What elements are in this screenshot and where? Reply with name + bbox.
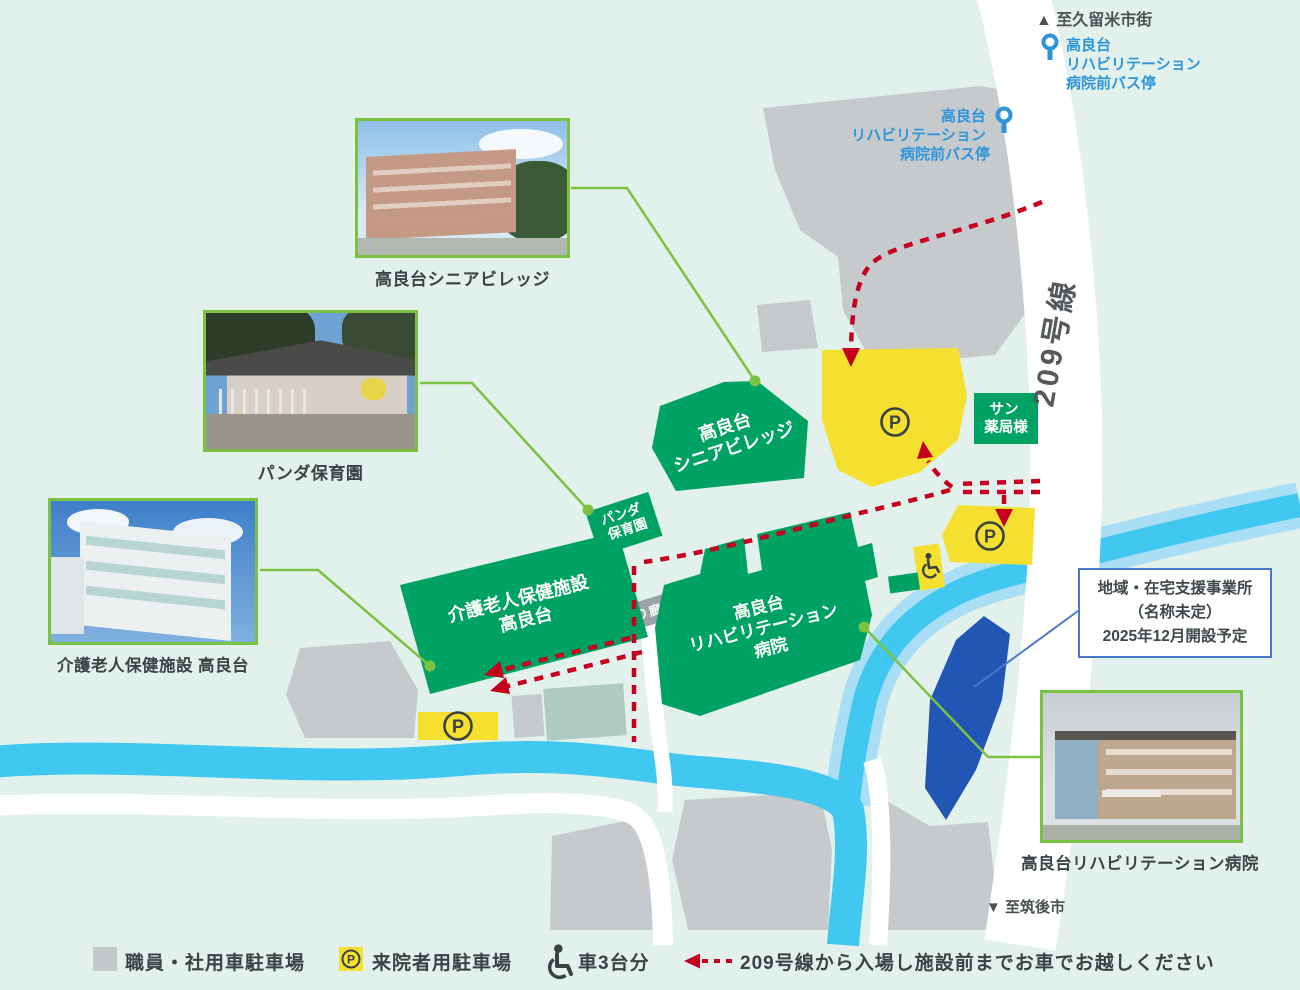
arrowhead-kaigo-2 [490, 677, 510, 694]
legend-wheelchair-label: 車3台分 [578, 948, 650, 975]
svg-text:P: P [452, 717, 464, 737]
callout-dot [859, 622, 870, 633]
photo-roofline [1055, 731, 1236, 740]
photo-caption: パンダ保育園 [203, 459, 418, 484]
photo-rehab-hospital [1040, 690, 1243, 843]
planned-site-info-box: 地域・在宅支援事業所 （名称未定） 2025年12月開設予定 [1078, 568, 1272, 658]
photo-canopy [1102, 790, 1161, 797]
photo-kaigo-rojin [48, 498, 258, 645]
photo-ground [358, 238, 567, 255]
building-hospital-annex [888, 572, 920, 593]
access-map: 渡り廊下 高良台 シニアビレッジ パンダ 保育園 介護老人保健施設 高良台 高良… [0, 0, 1300, 990]
staff-parking-southeast [885, 800, 1000, 930]
legend-route-instruction: 209号線から入場し施設前までお車でお越しください [740, 948, 1215, 975]
photo-panda-nursery [203, 310, 418, 452]
photo-glass-atrium [1055, 740, 1098, 819]
bus-stop-east: 高良台 リハビリテーション 病院前バス停 [1044, 36, 1205, 93]
photo-caption: 介護老人保健施設 高良台 [48, 652, 258, 676]
callout-dot [750, 376, 761, 387]
bus-stop-label: 高良台 リハビリテーション 病院前バス停 [1066, 36, 1205, 92]
svg-text:P: P [347, 953, 355, 967]
staff-parking-west [286, 641, 418, 738]
photo-building-wing [51, 557, 84, 633]
photo-caption: 高良台リハビリテーション病院 [1015, 850, 1265, 874]
legend-visitor-parking-swatch: P [339, 947, 363, 971]
aux-buildings [512, 683, 627, 740]
photo-window-bands [86, 536, 225, 624]
info-line: 2025年12月開設予定 [1103, 625, 1248, 649]
photo-sign [361, 378, 386, 400]
photo-bushes [1043, 825, 1240, 840]
svg-text:P: P [889, 413, 901, 433]
staff-parking-south [672, 792, 832, 930]
legend-route-arrow [682, 952, 732, 970]
direction-south-label: ▼ 至筑後市 [986, 898, 1065, 916]
photo-caption: 高良台シニアビレッジ [355, 265, 570, 290]
direction-north-label: ▲ 至久留米市街 [1036, 10, 1152, 29]
legend-staff-parking-label: 職員・社用車駐車場 [125, 948, 305, 975]
photo-windows [1106, 749, 1232, 808]
legend-staff-parking-swatch [93, 947, 117, 971]
callout-dot [583, 505, 594, 516]
legend-parking-marker: P [339, 947, 363, 971]
info-line: （名称未定） [1128, 601, 1221, 625]
figure-senior-village: 高良台シニアビレッジ [355, 118, 570, 290]
legend-wheelchair-icon [538, 942, 576, 982]
figure-kaigo-rojin: 介護老人保健施設 高良台 [48, 498, 258, 676]
planned-site-area [925, 616, 1010, 820]
photo-senior-village [355, 118, 570, 258]
photo-ground [206, 414, 415, 449]
figure-rehab-hospital: 高良台リハビリテーション病院 [1040, 690, 1243, 874]
legend: 職員・社用車駐車場 P 来院者用駐車場 車3台分 209号線から入場し施設前まで… [0, 942, 1300, 982]
legend-visitor-parking-label: 来院者用駐車場 [372, 948, 512, 975]
callout-dot [425, 661, 436, 672]
figure-panda-nursery: パンダ保育園 [203, 310, 418, 484]
photo-fence [219, 389, 315, 416]
route-entry-lane-1 [957, 481, 1040, 484]
info-line: 地域・在宅支援事業所 [1097, 577, 1252, 601]
callout-panda [420, 383, 588, 510]
photo-windows [373, 163, 511, 221]
route-branch-up [928, 461, 952, 487]
staff-parking-north-small [757, 300, 818, 352]
aux-building-gray [512, 694, 545, 738]
road-riverside [872, 760, 881, 945]
svg-text:P: P [984, 527, 996, 547]
aux-building-teal [543, 683, 626, 740]
callout-senior-village [571, 188, 755, 381]
